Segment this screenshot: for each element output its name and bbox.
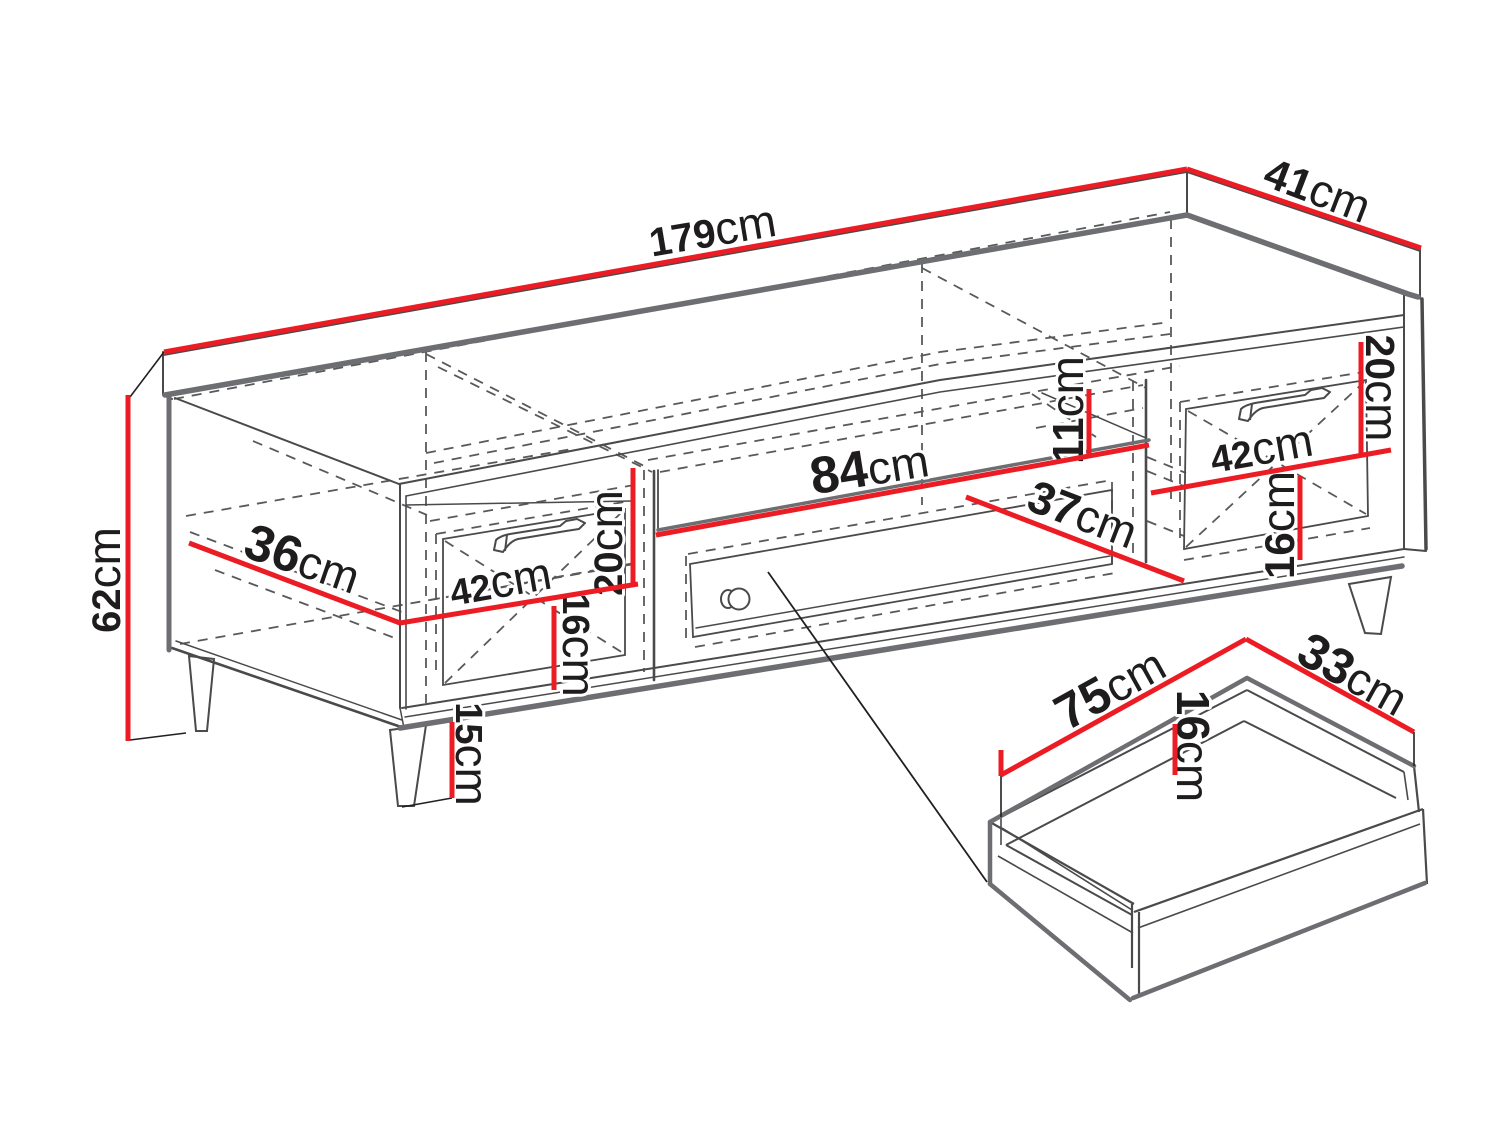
svg-text:16cm: 16cm xyxy=(1252,471,1304,579)
svg-text:20cm: 20cm xyxy=(1356,335,1408,442)
svg-text:62cm: 62cm xyxy=(78,527,130,633)
svg-text:11cm: 11cm xyxy=(1041,356,1093,464)
svg-text:20cm: 20cm xyxy=(580,490,632,596)
